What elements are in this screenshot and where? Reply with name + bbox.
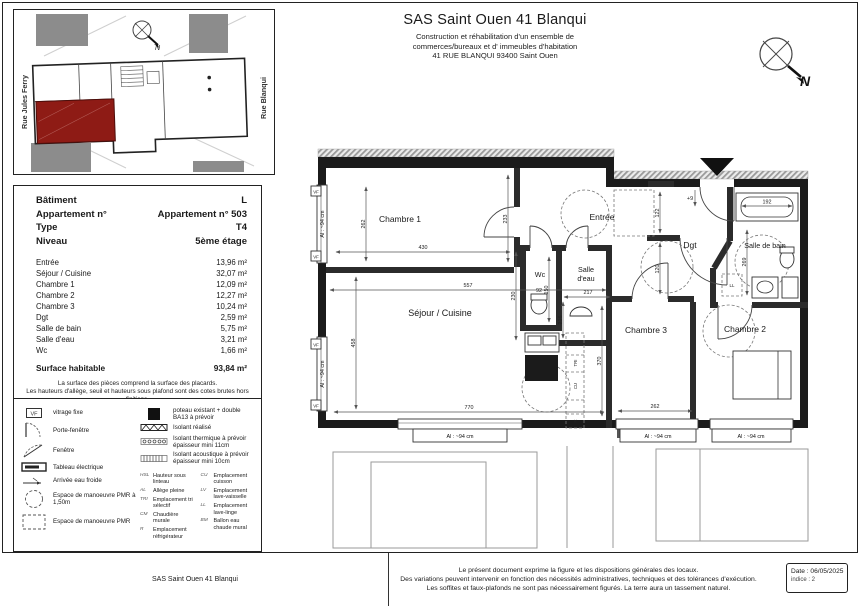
pmr-circle-icon (20, 488, 48, 510)
sheet-subtitle-1: Construction et réhabilitation d'un ense… (330, 32, 660, 42)
building-outline (33, 58, 248, 155)
room-label-dgt: Dgt (683, 240, 697, 250)
legend-item-porte-fenetre: Porte-fenêtre (20, 421, 138, 439)
floor-plan: VF VF VF VF Al : ~94 cm Al : ~94 cm Al :… (296, 145, 860, 552)
north-label: N (800, 73, 811, 89)
pmr-rect-icon (20, 513, 48, 531)
vf-mark: VF (313, 404, 319, 409)
sheet-title: SAS Saint Ouen 41 Blanqui (330, 12, 660, 28)
stove-icon (525, 355, 558, 381)
legend-panel: VF vitrage fixe Porte-fenêtre Fenêtre Ta… (13, 399, 262, 552)
disclaimer-line-1: Le présent document exprime la figure et… (459, 566, 699, 575)
window-allege-label: Al : ~94 cm (737, 434, 765, 440)
abbr-hsl: HSLHauteur sous linteau (140, 473, 197, 486)
disclaimer-line-3: Les soffites et faux-plafonds ne sont pa… (427, 584, 731, 593)
vf-mark: VF (313, 343, 319, 348)
entry-closet (614, 190, 654, 236)
type-value: T4 (236, 221, 247, 235)
vf-mark: VF (313, 190, 319, 195)
area-row: Salle d'eau3,21 m² (14, 334, 261, 345)
footer-project-name: SAS Saint Ouen 41 Blanqui (2, 553, 389, 606)
porte-fenetre-icon (20, 421, 48, 439)
legend-item-eau-froide: Arrivée eau froide (20, 476, 138, 486)
svg-text:LL: LL (730, 283, 735, 288)
dim-216: 216 (558, 316, 564, 325)
area-row: Dgt2,59 m² (14, 312, 261, 323)
abbr-al: ALAllège pleine (140, 488, 197, 494)
legend-item-fenetre: Fenêtre (20, 442, 138, 459)
vitrage-fixe-icon: VF (20, 407, 48, 419)
site-north-label: N (155, 45, 161, 52)
dim-217: 217 (584, 290, 593, 296)
isolant-realise-icon (140, 423, 168, 432)
area-row: Chambre 212,27 m² (14, 290, 261, 301)
plan-sheet: N Rue Jules Ferry Rue Blanqui SAS Saint … (0, 0, 860, 607)
dim-770: 770 (465, 405, 474, 411)
dim-192: 192 (763, 200, 772, 206)
room-labels: Chambre 1 Entrée Dgt Salle de bain Wc Sa… (379, 212, 786, 335)
abbr-lv: LVEmplacement lave-vaisselle (201, 488, 258, 501)
dim-430: 430 (419, 245, 428, 251)
kitchen-sink-icon (525, 333, 559, 352)
legend-item-isolant-acoustique: Isolant acoustique à prévoir épaisseur m… (140, 451, 257, 465)
area-row: Wc1,66 m² (14, 345, 261, 356)
room-label-salle-deau-1: Salle (578, 265, 594, 274)
batiment-value: L (241, 194, 247, 208)
diagonal-wall (714, 241, 730, 268)
area-row: Chambre 112,09 m² (14, 279, 261, 290)
vf-mark: VF (313, 255, 319, 260)
legend-column-materials: poteau existant + double BA13 à prévoir … (138, 399, 261, 551)
fenetre-icon (20, 442, 48, 459)
niveau-label: Niveau (36, 235, 67, 249)
niveau-value: 5ème étage (195, 235, 247, 249)
area-row: Chambre 310,24 m² (14, 301, 261, 312)
room-label-chambre-1: Chambre 1 (379, 214, 421, 224)
washbasin-sdb-icon (752, 277, 798, 298)
footer: SAS Saint Ouen 41 Blanqui Le présent doc… (2, 552, 858, 606)
title-block: SAS Saint Ouen 41 Blanqui Construction e… (330, 12, 660, 61)
north-compass: N (742, 24, 818, 95)
legend-item-pmr-rect: Espace de manoeuvre PMR (20, 513, 138, 531)
apartment-id-rows: BâtimentL Appartement n°Appartement n° 5… (14, 186, 261, 248)
room-areas-list: Entrée13,96 m² Séjour / Cuisine32,07 m² … (14, 257, 261, 356)
dim-step: +9 (687, 196, 693, 202)
type-label: Type (36, 221, 57, 235)
legend-item-vitrage-fixe: VF vitrage fixe (20, 407, 138, 419)
room-label-sejour-cuisine: Séjour / Cuisine (408, 308, 472, 318)
legend-item-isolant-realise: Isolant réalisé (140, 423, 257, 432)
washbasin-sde-icon (570, 307, 592, 316)
dim-557: 557 (464, 283, 473, 289)
room-label-salle-deau-2: d'eau (577, 274, 594, 283)
cu-mark: CU (573, 383, 578, 389)
dim-230: 230 (511, 292, 517, 301)
abbr-cu: CUEmplacement cuisson (201, 473, 258, 486)
window-allege-label: Al : ~94 cm (644, 434, 672, 440)
area-row: Séjour / Cuisine32,07 m² (14, 268, 261, 279)
eau-froide-icon (20, 476, 48, 486)
dim-122: 122 (655, 209, 661, 218)
dim-262-bottom: 262 (651, 404, 660, 410)
toilet-wc-icon (531, 294, 547, 314)
r-mark: R (573, 419, 578, 422)
abbr-cm: CMChaudière murale (140, 512, 197, 525)
appartement-label: Appartement n° (36, 208, 107, 222)
dim-458: 458 (351, 339, 357, 348)
room-label-chambre-3: Chambre 3 (625, 325, 667, 335)
legend-item-isolant-thermique: Isolant thermique à prévoir épaisseur mi… (140, 435, 257, 449)
room-label-salle-de-bain: Salle de bain (744, 241, 786, 250)
toilet-sdb-icon (780, 247, 794, 268)
site-plan: N Rue Jules Ferry Rue Blanqui (13, 9, 275, 175)
legend-abbreviations: HSLHauteur sous linteau ALAllège pleine … (140, 470, 257, 543)
adjacent-structures (333, 425, 808, 548)
poteau-icon (140, 407, 168, 421)
window-allege-label: Al : ~94 cm (320, 360, 326, 388)
legend-item-poteau: poteau existant + double BA13 à prévoir (140, 407, 257, 421)
disclaimer-line-2: Des variations peuvent intervenir en fon… (400, 575, 756, 584)
legend-item-pmr-circle: Espace de manoeuvre PMR à 1,50m (20, 488, 138, 510)
date-box: Date : 06/05/2025 indice : 2 (786, 563, 848, 593)
dim-370: 370 (597, 357, 603, 366)
highlighted-unit (36, 99, 115, 144)
street-right-label: Rue Blanqui (259, 77, 268, 119)
window-allege-label: Al : ~94 cm (446, 434, 474, 440)
street-left-label: Rue Jules Ferry (20, 75, 29, 129)
date-value: Date : 06/05/2025 (791, 568, 844, 575)
abbr-ll: LLEmplacement lave-linge (201, 503, 258, 516)
abbr-bm: BMBallon eau chaude mural (201, 518, 258, 531)
legend-column-symbols: VF vitrage fixe Porte-fenêtre Fenêtre Ta… (14, 399, 138, 551)
abbr-r: REmplacement réfrigérateur (140, 527, 197, 540)
area-row: Salle de bain5,75 m² (14, 323, 261, 334)
dim-262-left: 262 (361, 220, 367, 229)
dim-92: 92 (536, 288, 542, 294)
apartment-info-panel: BâtimentL Appartement n°Appartement n° 5… (13, 185, 262, 399)
abbr-tri: TRIEmplacement tri sélectif (140, 497, 197, 510)
indice-value: indice : 2 (791, 577, 844, 583)
svg-text:VF: VF (30, 411, 38, 417)
room-label-chambre-2: Chambre 2 (724, 324, 766, 334)
dim-233: 233 (503, 215, 509, 224)
room-label-entree: Entrée (589, 212, 614, 222)
dim-150: 150 (544, 286, 550, 295)
site-compass-icon: N (133, 21, 161, 52)
isolant-acoustique-icon (140, 454, 168, 463)
sheet-address: 41 RUE BLANQUI 93400 Saint Ouen (330, 51, 660, 61)
tri-mark: TRI (573, 359, 578, 366)
batiment-label: Bâtiment (36, 194, 77, 208)
tableau-electrique-icon (20, 461, 48, 473)
bathtub-icon (736, 193, 798, 221)
surface-total-row: Surface habitable93,84 m² (14, 363, 261, 373)
isolant-thermique-icon (140, 437, 168, 446)
legend-item-tableau-electrique: Tableau électrique (20, 461, 138, 473)
north-compass-icon: N (742, 24, 818, 90)
window-allege-label: Al : ~94 cm (320, 210, 326, 238)
dim-269: 269 (742, 258, 748, 267)
fixtures: LL TRI CU R (525, 190, 798, 428)
area-row: Entrée13,96 m² (14, 257, 261, 268)
appartement-value: Appartement n° 503 (158, 208, 247, 222)
dim-120: 120 (655, 265, 661, 274)
site-plan-drawing: N Rue Jules Ferry Rue Blanqui (14, 10, 272, 172)
room-label-wc: Wc (535, 270, 546, 279)
sheet-subtitle-2: commerces/bureaux et d' immeubles d'habi… (330, 42, 660, 52)
bed-icon (733, 351, 791, 399)
